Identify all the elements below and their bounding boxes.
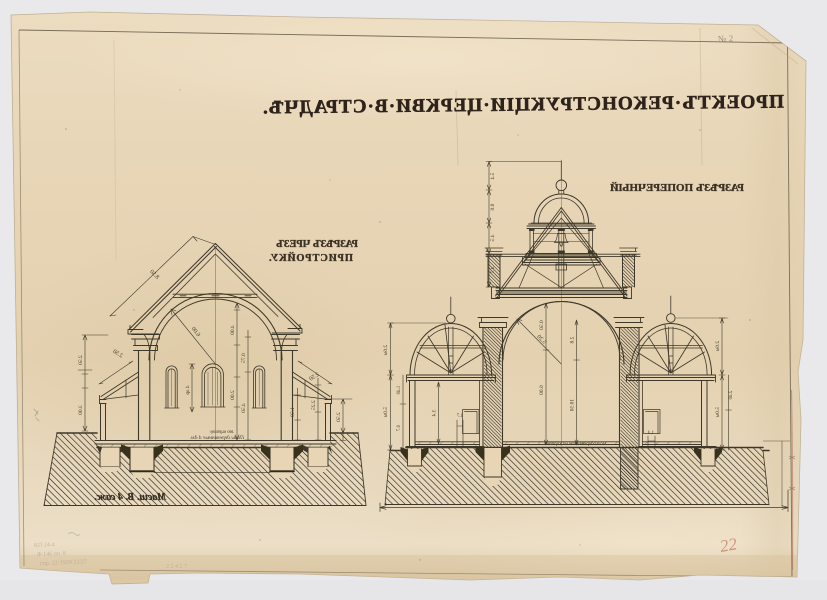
svg-text:4.00: 4.00 <box>230 325 236 335</box>
svg-text:РАЗРѢЗЪ ЧРЕЗЪ: РАЗРѢЗЪ ЧРЕЗЪ <box>276 239 358 250</box>
svg-text:№ 2: № 2 <box>718 33 734 44</box>
svg-text:1.50: 1.50 <box>290 407 296 417</box>
svg-text:2.25: 2.25 <box>311 400 317 410</box>
svg-text:2.6м: 2.6м <box>383 345 389 356</box>
svg-text:6.00: 6.00 <box>539 385 545 395</box>
svg-text:10.50: 10.50 <box>570 399 576 412</box>
svg-text:5.0м: 5.0м <box>383 407 389 418</box>
svg-text:0.7: 0.7 <box>397 425 402 432</box>
svg-text:2.40: 2.40 <box>729 391 734 400</box>
svg-text:3.4: 3.4 <box>432 410 438 417</box>
svg-text:2 2 4 2 7: 2 2 4 2 7 <box>166 564 187 570</box>
svg-text:Ф 146 оп. 8: Ф 146 оп. 8 <box>37 551 66 558</box>
svg-text:2.50: 2.50 <box>336 412 342 422</box>
svg-text:2.6м: 2.6м <box>715 341 721 352</box>
svg-text:3.00: 3.00 <box>78 405 84 415</box>
svg-text:КП 24-4: КП 24-4 <box>34 542 55 549</box>
svg-text:2.00: 2.00 <box>230 390 236 400</box>
svg-text:.8ю кирпичу: .8ю кирпичу <box>209 430 234 435</box>
svg-text:5.4: 5.4 <box>490 173 496 180</box>
svg-text:5.0м: 5.0м <box>715 407 721 418</box>
svg-text:1.4: 1.4 <box>647 431 654 436</box>
svg-text:0.6: 0.6 <box>490 204 496 211</box>
svg-text:Полы деревянные на кирпичѣ: Полы деревянные на кирпичѣ <box>543 442 608 447</box>
svg-text:1.40: 1.40 <box>397 386 402 395</box>
svg-text:ПРИСТРОЙКУ.: ПРИСТРОЙКУ. <box>269 252 353 264</box>
svg-text:2.8: 2.8 <box>570 337 576 344</box>
svg-text:2.50: 2.50 <box>78 355 84 365</box>
svg-text:Масш. В. 4 саж.: Масш. В. 4 саж. <box>94 492 167 503</box>
svg-text:0.75: 0.75 <box>241 353 247 363</box>
svg-text:4.7: 4.7 <box>490 267 496 274</box>
svg-text:1.7: 1.7 <box>456 414 463 419</box>
svg-text:РАЗРѢЗЪ ПОПЕРЕЧНЫЙ: РАЗРѢЗЪ ПОПЕРЕЧНЫЙ <box>610 182 744 194</box>
svg-text:0.50: 0.50 <box>539 320 545 330</box>
svg-text:4.5: 4.5 <box>490 235 496 242</box>
svg-text:4 ар: 4 ар <box>185 385 191 395</box>
svg-text:4.50: 4.50 <box>241 403 247 413</box>
